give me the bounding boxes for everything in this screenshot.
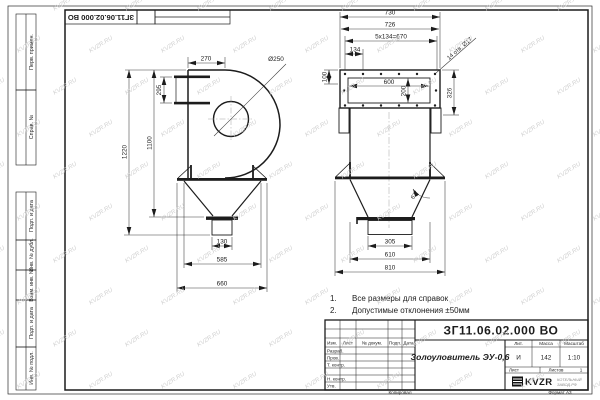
sidebar-label-vzam-inv: Взам. инв. № — [29, 268, 35, 302]
tb-header-izm: Изм. — [327, 341, 337, 346]
dim-label-134: 134 — [350, 47, 361, 54]
tb-row-developed: Разраб. — [327, 349, 344, 354]
dim-label-730: 730 — [385, 10, 396, 17]
tb-header-sheets: Листов — [549, 368, 564, 373]
tb-value-scale: 1:10 — [568, 355, 581, 362]
angle-label: 67° — [410, 190, 420, 201]
front-view: 270 Ø250 295 1100 1220 130 585 660 — [122, 56, 287, 293]
sidebar-label-podp-data-2: Подп. и дата — [29, 307, 35, 339]
footer-copied-label: Копировал — [388, 390, 411, 395]
sidebar-label-podp-data-1: Подп. и дата — [29, 200, 35, 232]
tb-row-checked: Пров. — [327, 356, 339, 361]
footer-format-label: Формат А3 — [548, 390, 572, 395]
dim-label-pitch: 5x134=670 — [375, 34, 407, 41]
tb-header-scale: Масштаб — [564, 341, 584, 346]
sidebar-label-inv-dubl: Инв. № дубл. — [29, 238, 35, 271]
sidebar-label-inv-podl: Инв. № подл. — [29, 351, 35, 385]
tb-row-ncontr: Н. контр. — [327, 377, 346, 382]
note-1-text: Все размеры для справок — [352, 294, 449, 303]
title-block: ЗГ11.06.02.000 ВО Золоуловитель ЭУ-0,6 И… — [325, 320, 588, 390]
top-stamp-doc-number: ЗГ11.06.02.000 ВО — [68, 13, 134, 22]
kvzr-logo: KVZR КОТЕЛЬНЫЙ ЗАВОД.РФ — [512, 377, 582, 389]
tb-header-lit: Лит. — [514, 341, 523, 346]
tb-row-tcontr: Т. контр. — [327, 363, 345, 368]
sidebar-label-sprav: Справ. № — [29, 115, 35, 140]
dim-label-100: 100 — [322, 71, 329, 82]
logo-text: KVZR — [525, 377, 552, 388]
dim-label-660: 660 — [217, 281, 228, 288]
dim-label-600: 600 — [384, 79, 395, 86]
dim-label-295: 295 — [156, 84, 163, 95]
dim-label-130: 130 — [217, 239, 228, 246]
product-name: Золоуловитель ЭУ-0,6 — [411, 352, 510, 362]
dim-label-326: 326 — [447, 87, 454, 98]
dim-label-810: 810 — [385, 265, 396, 272]
top-reference-stamp: ЗГ11.06.02.000 ВО — [65, 10, 230, 24]
side-view: 730 726 5x134=670 134 14 отв. Ø17 100 60… — [322, 10, 477, 277]
dim-label-200: 200 — [401, 85, 408, 96]
tb-value-mass: 142 — [541, 355, 552, 362]
dim-label-d250: Ø250 — [268, 56, 284, 63]
note-2-number: 2. — [330, 306, 337, 315]
dim-label-1220: 1220 — [122, 144, 129, 159]
dim-label-1100: 1100 — [147, 136, 154, 150]
sidebar-stamp-labels: Перв. примен. Справ. № Подп. и дата Инв.… — [29, 34, 35, 385]
dim-label-726: 726 — [385, 22, 396, 29]
dim-label-585: 585 — [217, 257, 228, 264]
dim-label-610: 610 — [385, 252, 396, 259]
sidebar-label-perv-primen: Перв. примен. — [29, 34, 35, 70]
note-1-number: 1. — [330, 294, 337, 303]
drawing-sheet: KVZR.RUKVZR.RUKVZR.RUKVZR.RUKVZR.RUKVZR.… — [0, 0, 600, 400]
drawing-canvas: Перв. примен. Справ. № Подп. и дата Инв.… — [0, 0, 600, 400]
logo-subtext-2: ЗАВОД.РФ — [557, 382, 577, 387]
tb-header-list: Лист — [343, 341, 354, 346]
tb-header-sheet: Лист — [509, 368, 520, 373]
tb-header-doc: № докум. — [362, 341, 382, 346]
tb-value-sheets-count: 1 — [580, 368, 583, 373]
front-inlet-flange — [174, 76, 210, 105]
holes-note-label: 14 отв. Ø17 — [446, 37, 473, 62]
tb-header-sign: Подп. — [389, 341, 401, 346]
dim-label-270: 270 — [201, 56, 212, 63]
tb-value-lit: И — [516, 355, 521, 362]
title-doc-number: ЗГ11.06.02.000 ВО — [444, 324, 559, 338]
tb-header-date: Дата — [403, 341, 414, 346]
tb-header-mass: Масса — [539, 341, 553, 346]
notes: 1. Все размеры для справок 2. Допустимые… — [330, 294, 470, 315]
note-2-text: Допустимые отклонения ±50мм — [352, 306, 470, 315]
dim-label-305: 305 — [385, 239, 396, 246]
tb-row-approved: Утв. — [327, 384, 336, 389]
